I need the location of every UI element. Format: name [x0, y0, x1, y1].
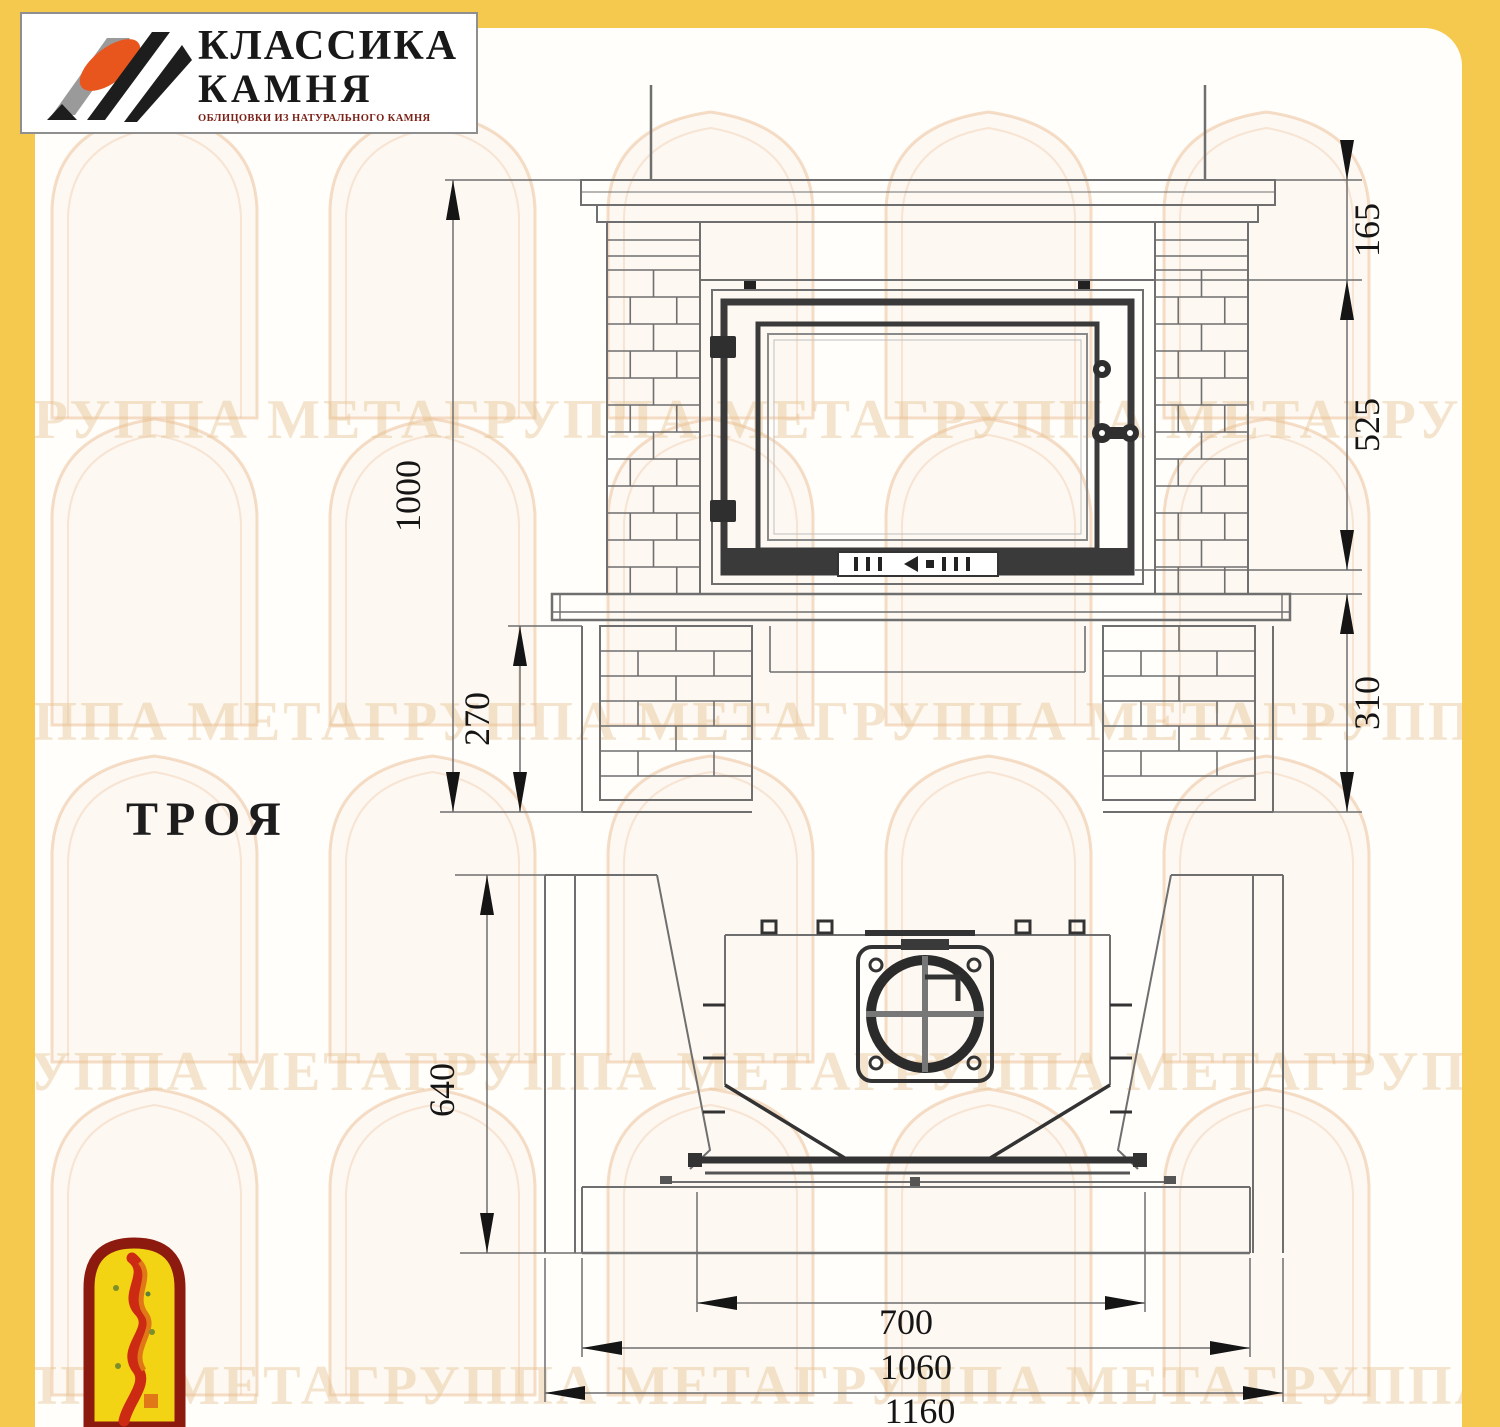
- brand-title-line2: КАМНЯ: [198, 68, 470, 110]
- watermark-text-row: ГРУППА МЕТАГРУППА МЕТАГРУППА МЕТАГРУППА …: [35, 1040, 1462, 1104]
- brand-text: КЛАССИКА КАМНЯ ОБЛИЦОВКИ ИЗ НАТУРАЛЬНОГО…: [198, 24, 470, 124]
- watermark-text-row: ГРУППА МЕТАГРУППА МЕТАГРУППА МЕТАГРУППА …: [35, 690, 1462, 754]
- brand-title-line1: КЛАССИКА: [198, 24, 470, 68]
- spec-sheet: ГРУППА МЕТАГРУППА МЕТАГРУППА МЕТАГРУППА …: [0, 0, 1500, 1427]
- paper-background: ГРУППА МЕТАГРУППА МЕТАГРУППА МЕТАГРУППА …: [35, 28, 1462, 1427]
- logo-mark-icon: [32, 20, 192, 126]
- emblem-icon: [82, 1236, 187, 1427]
- brand-subtitle: ОБЛИЦОВКИ ИЗ НАТУРАЛЬНОГО КАМНЯ: [198, 113, 470, 124]
- brand-logo: КЛАССИКА КАМНЯ ОБЛИЦОВКИ ИЗ НАТУРАЛЬНОГО…: [20, 12, 478, 134]
- model-name-label: ТРОЯ: [126, 792, 289, 847]
- watermark-text-row: ГРУППА МЕТАГРУППА МЕТАГРУППА МЕТАГРУППА …: [35, 1354, 1462, 1418]
- watermark-text-row: ГРУППА МЕТАГРУППА МЕТАГРУППА МЕТАГРУППА …: [35, 388, 1462, 452]
